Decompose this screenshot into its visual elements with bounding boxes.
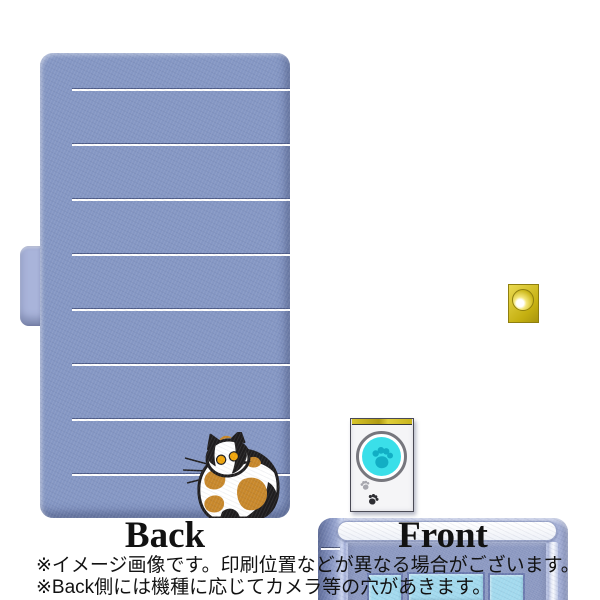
calico-cat-illustration (180, 432, 281, 518)
paw-print-icon (368, 443, 396, 471)
stitch-stripe (72, 198, 290, 201)
stitch-stripe (72, 308, 290, 311)
stitch-stripe (72, 88, 290, 91)
stitch-stripe (72, 418, 290, 421)
cat-eye (229, 451, 239, 461)
disclaimer-notes: ※イメージ画像です。印刷位置などが異なる場合がございます。 ※Back側には機種… (36, 555, 580, 598)
back-view-label: Back (40, 517, 290, 555)
doorknob-icon (512, 289, 534, 311)
product-image: Back Front ※イメージ画像です。印刷位置などが異なる場合がございます。… (0, 0, 600, 600)
disclaimer-line-1: ※イメージ画像です。印刷位置などが異なる場合がございます。 (36, 555, 580, 577)
doorbell-intercom (350, 418, 414, 512)
front-view-label: Front (318, 517, 568, 555)
disclaimer-line-2: ※Back側には機種に応じてカメラ等の穴があきます。 (36, 577, 580, 599)
doorbell-button (362, 437, 401, 476)
paw-prints-icon (364, 490, 381, 507)
stitch-stripe (72, 143, 290, 146)
stitch-stripe (72, 253, 290, 256)
intercom-top-plate (352, 419, 412, 425)
doorbell-ring (356, 431, 407, 482)
cat-eye (216, 455, 226, 465)
back-cover (40, 53, 290, 518)
stitch-stripe (72, 363, 290, 366)
